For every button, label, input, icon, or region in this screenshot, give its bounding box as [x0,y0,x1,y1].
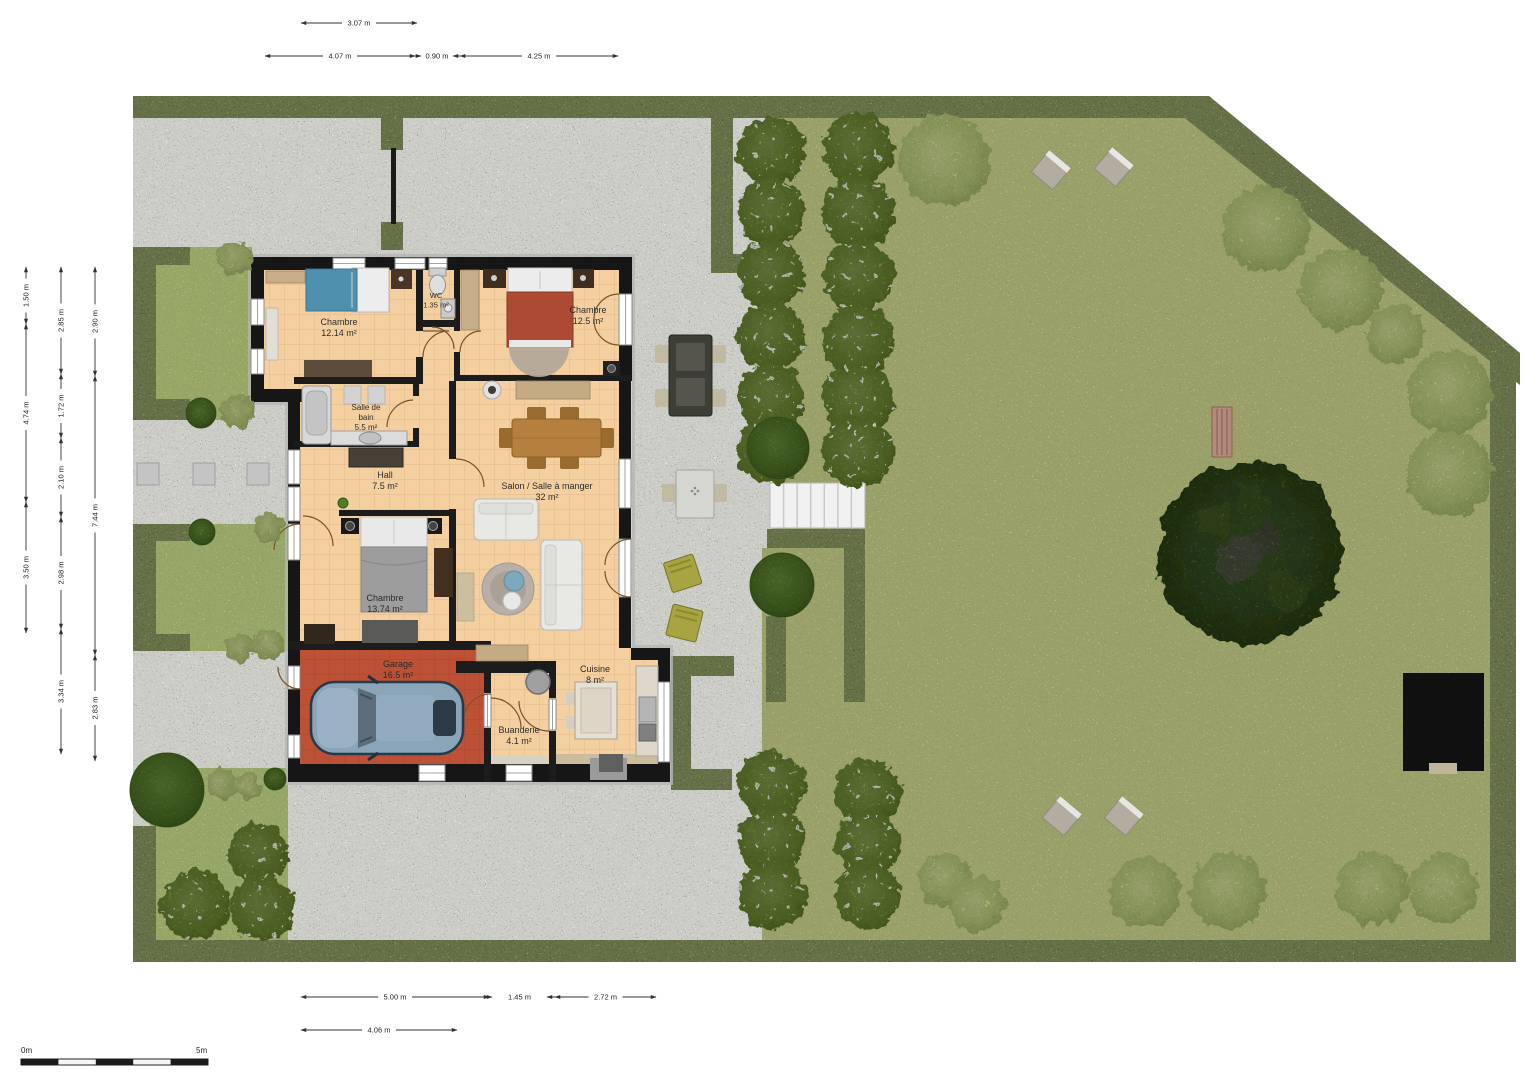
svg-text:2.10 m: 2.10 m [57,466,66,489]
svg-text:5m: 5m [196,1046,207,1055]
svg-text:4.06 m: 4.06 m [368,1026,391,1035]
svg-text:4.07 m: 4.07 m [329,52,352,61]
svg-text:Chambre12.5 m²: Chambre12.5 m² [569,305,606,326]
svg-text:1.72 m: 1.72 m [57,395,66,418]
svg-text:2.85 m: 2.85 m [57,309,66,332]
svg-text:0.90 m: 0.90 m [426,52,449,61]
svg-text:3.34 m: 3.34 m [57,680,66,703]
svg-text:Chambre13.74 m²: Chambre13.74 m² [366,593,403,614]
svg-text:1.50 m: 1.50 m [22,284,31,307]
svg-text:2.98 m: 2.98 m [57,562,66,585]
svg-text:7.44 m: 7.44 m [91,504,100,527]
svg-text:2.72 m: 2.72 m [594,993,617,1002]
svg-text:4.25 m: 4.25 m [528,52,551,61]
svg-text:Garage16.5 m²: Garage16.5 m² [383,659,414,680]
svg-text:3.50 m: 3.50 m [22,556,31,579]
svg-text:1.45 m: 1.45 m [508,993,531,1002]
svg-text:5.00 m: 5.00 m [384,993,407,1002]
svg-text:Chambre12.14 m²: Chambre12.14 m² [320,317,357,338]
svg-text:2.90 m: 2.90 m [91,310,100,333]
svg-text:3.07 m: 3.07 m [348,19,371,28]
svg-text:2.83 m: 2.83 m [91,697,100,720]
svg-text:4.74 m: 4.74 m [22,402,31,425]
svg-text:0m: 0m [21,1046,32,1055]
